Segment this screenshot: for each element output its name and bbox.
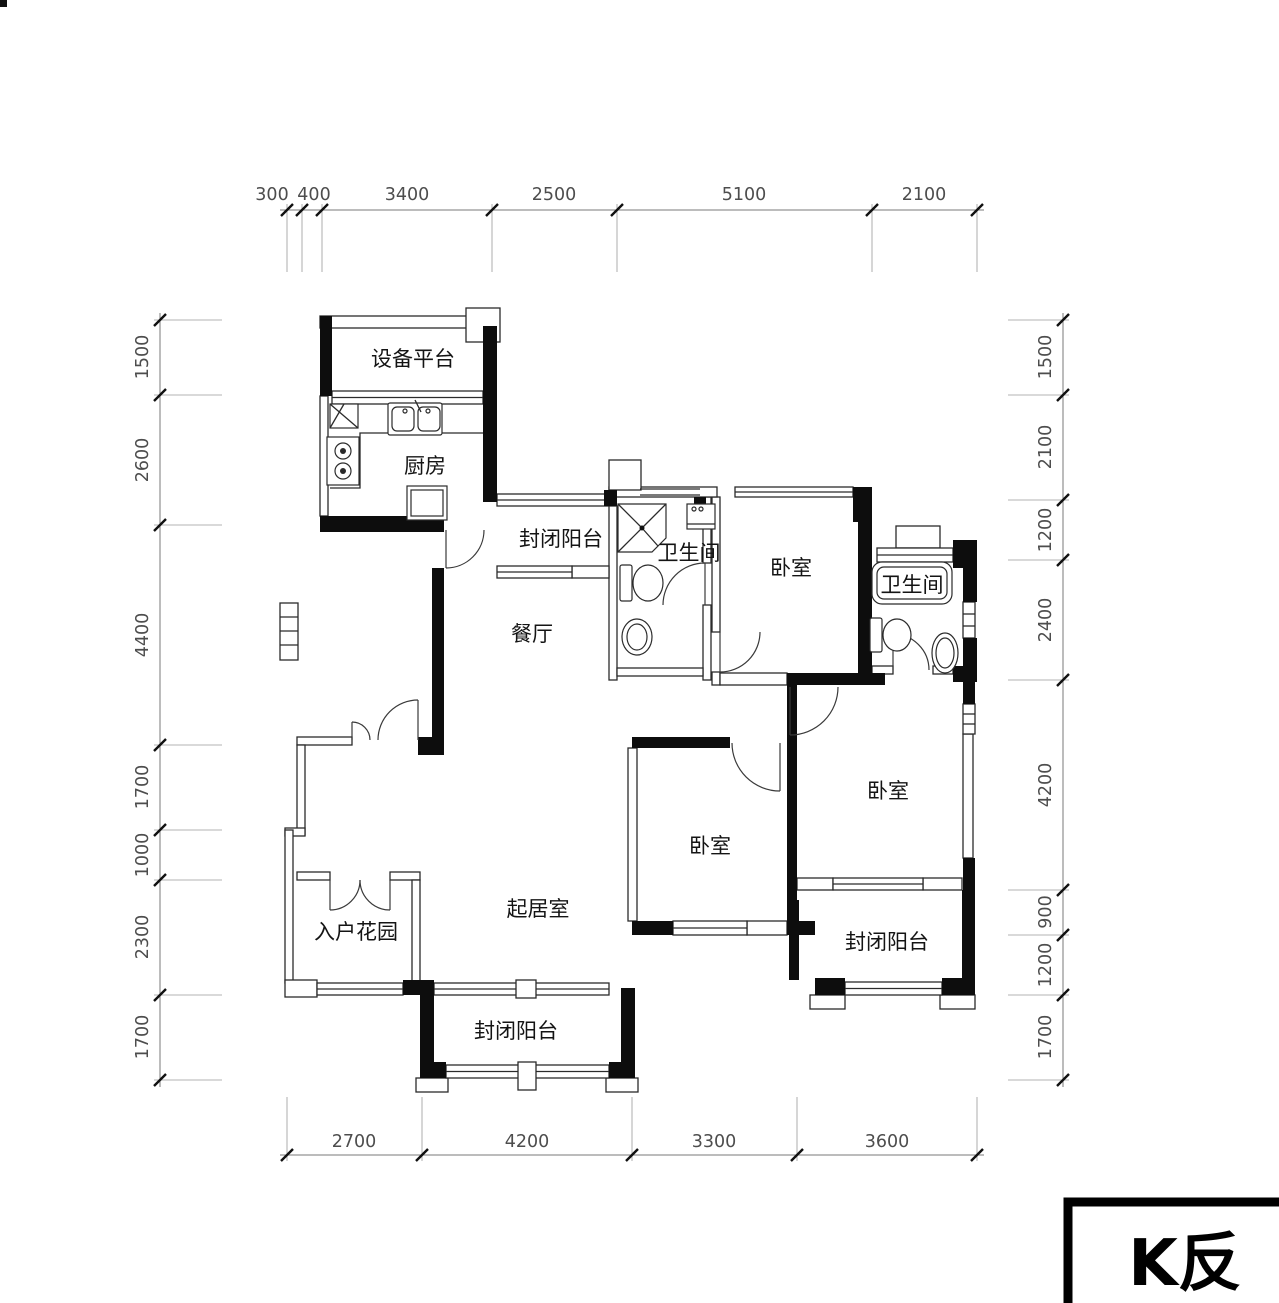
kitchen-sink <box>388 400 442 435</box>
bedroom-top-door <box>720 632 760 672</box>
room-label-kitchen: 厨房 <box>404 454 446 478</box>
dim-top-5100: 5100 <box>722 185 767 205</box>
room-label-bedroom-middle: 卧室 <box>689 834 731 858</box>
room-label-balcony-bottom: 封闭阳台 <box>474 1019 558 1043</box>
window-bedroom2-right <box>963 704 975 734</box>
dim-right-900: 900 <box>1036 895 1056 928</box>
washing-machine <box>687 504 715 529</box>
dim-left-1700a: 1700 <box>133 765 153 810</box>
window-bath2-top <box>877 548 953 562</box>
room-labels: 设备平台 厨房 封闭阳台 卫生间 卧室 卫生间 餐厅 卧室 卧室 起居室 入户花… <box>314 347 944 1043</box>
plan-title: K反 <box>1128 1227 1242 1301</box>
bath1-sink <box>622 619 652 655</box>
window-bath2-right <box>963 602 975 638</box>
floor-plan-page: 300 400 3400 2500 5100 2100 2700 4200 33… <box>0 0 1279 1303</box>
dim-left-4400: 4400 <box>133 613 153 658</box>
window-platform-kitchen <box>332 391 483 404</box>
window-living-bottom <box>434 980 609 998</box>
bath1-door <box>663 563 705 605</box>
window-bedroom2-balcony <box>833 878 923 890</box>
dim-right-1200b: 1200 <box>1036 943 1056 988</box>
bedroom-right-door <box>790 687 838 735</box>
dim-top-400: 400 <box>297 185 330 205</box>
dimension-string-right: 1500 2100 1200 2400 4200 900 1200 1700 <box>1008 313 1069 1087</box>
room-label-balcony-top: 封闭阳台 <box>519 527 603 551</box>
dim-bottom-3300: 3300 <box>692 1132 737 1152</box>
dim-left-2300: 2300 <box>133 915 153 960</box>
dim-left-1700b: 1700 <box>133 1015 153 1060</box>
window-balcony-right-bottom <box>845 982 942 995</box>
room-label-bath-2: 卫生间 <box>881 573 944 597</box>
dim-right-2400: 2400 <box>1036 598 1056 643</box>
bath1-toilet <box>620 565 663 601</box>
window-bedroom1-top <box>735 487 853 497</box>
room-label-balcony-right: 封闭阳台 <box>845 930 929 954</box>
dim-right-1200a: 1200 <box>1036 508 1056 553</box>
room-label-equipment-platform: 设备平台 <box>371 347 455 371</box>
dim-bottom-3600: 3600 <box>865 1132 910 1152</box>
extension-lines-top <box>287 204 977 272</box>
bath2-toilet <box>870 618 911 652</box>
dim-top-2100: 2100 <box>902 185 947 205</box>
bath2-sink <box>932 633 958 673</box>
dim-right-1500: 1500 <box>1036 335 1056 380</box>
room-label-dining: 餐厅 <box>511 622 553 646</box>
window-bedroom3-bottom <box>673 921 747 935</box>
dimension-string-left: 1500 2600 4400 1700 1000 2300 1700 <box>133 313 222 1087</box>
room-label-bedroom-right: 卧室 <box>867 779 909 803</box>
dim-left-2600: 2600 <box>133 438 153 483</box>
room-label-entry-garden: 入户花园 <box>314 920 398 944</box>
room-label-living: 起居室 <box>507 897 570 921</box>
dim-top-2500: 2500 <box>532 185 577 205</box>
window-balcony-bottom <box>446 1062 609 1090</box>
dimension-string-top: 300 400 3400 2500 5100 2100 <box>255 185 984 272</box>
kitchen-stove <box>327 437 359 485</box>
window-garden-bottom <box>317 983 403 995</box>
window-balcony-top-inner <box>497 566 572 578</box>
dim-right-4200: 4200 <box>1036 763 1056 808</box>
window-balcony-top <box>497 494 609 506</box>
dimension-string-bottom: 2700 4200 3300 3600 <box>280 1097 984 1161</box>
room-label-bath-1: 卫生间 <box>658 541 721 565</box>
room-label-bedroom-top: 卧室 <box>770 556 812 580</box>
kitchen-door <box>446 530 484 568</box>
garden-double-door <box>330 880 390 910</box>
kitchen-fridge <box>407 486 447 520</box>
dim-right-1700: 1700 <box>1036 1015 1056 1060</box>
ac-platform <box>280 603 298 660</box>
bedroom-middle-door <box>732 743 780 791</box>
dim-bottom-2700: 2700 <box>332 1132 377 1152</box>
dim-right-2100: 2100 <box>1036 425 1056 470</box>
floor-plan-drawing: 300 400 3400 2500 5100 2100 2700 4200 33… <box>0 0 1279 1303</box>
dim-top-3400: 3400 <box>385 185 430 205</box>
dim-left-1000: 1000 <box>133 833 153 878</box>
dim-bottom-4200: 4200 <box>505 1132 550 1152</box>
dim-left-1500: 1500 <box>133 335 153 380</box>
dim-top-300: 300 <box>255 185 288 205</box>
print-artifact <box>0 0 7 7</box>
title-block: K反 <box>1068 1202 1279 1303</box>
extension-lines-left <box>154 320 222 1080</box>
entry-double-door <box>352 700 418 740</box>
